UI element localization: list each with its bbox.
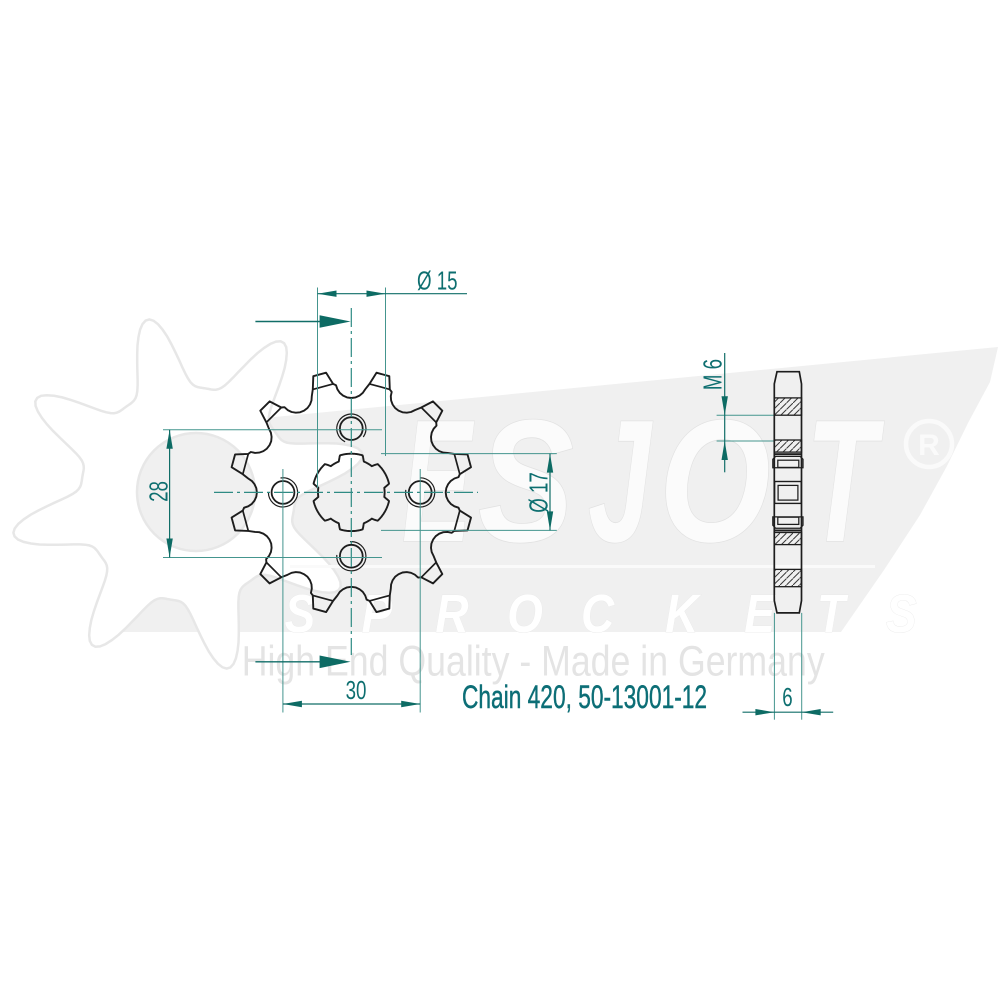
svg-text:K: K — [665, 584, 702, 644]
svg-text:28: 28 — [143, 481, 173, 502]
svg-text:E: E — [402, 385, 475, 579]
svg-text:R: R — [918, 429, 940, 462]
svg-text:O: O — [659, 384, 771, 578]
svg-text:E: E — [744, 584, 776, 644]
svg-text:S: S — [886, 584, 917, 644]
svg-text:Ø 15: Ø 15 — [417, 265, 458, 295]
svg-text:Chain 420, 50-13001-12: Chain 420, 50-13001-12 — [462, 679, 707, 715]
svg-text:30: 30 — [346, 675, 367, 705]
svg-text:P: P — [362, 584, 393, 644]
svg-text:R: R — [435, 584, 468, 644]
svg-text:M 6: M 6 — [697, 359, 727, 390]
svg-text:T: T — [806, 385, 885, 579]
svg-text:6: 6 — [782, 682, 792, 712]
svg-text:Ø 17: Ø 17 — [523, 472, 553, 513]
svg-text:C: C — [581, 584, 615, 644]
svg-text:T: T — [817, 584, 849, 644]
svg-text:J: J — [588, 384, 654, 578]
svg-text:O: O — [507, 584, 543, 644]
